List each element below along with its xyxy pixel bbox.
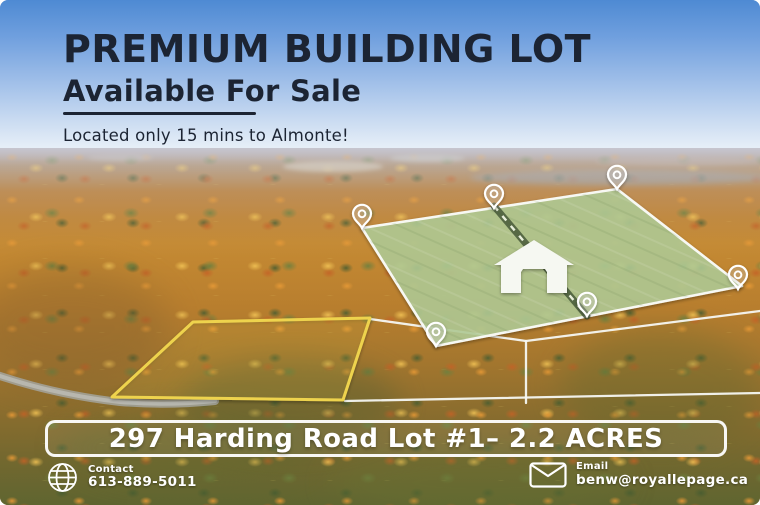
distant-field [595, 157, 760, 166]
distant-field [88, 154, 153, 161]
distant-lake [470, 170, 760, 185]
contact-block: Contact 613-889-5011 [46, 461, 197, 494]
email-label: Email [576, 461, 748, 473]
globe-icon [46, 461, 79, 494]
tagline: Located only 15 mins to Almonte! [63, 126, 591, 145]
distant-field [283, 161, 383, 172]
page-title: PREMIUM BUILDING LOT [63, 30, 591, 68]
address-banner: 297 Harding Road Lot #1– 2.2 ACRES [45, 420, 727, 457]
address-text: 297 Harding Road Lot #1– 2.2 ACRES [109, 424, 664, 454]
header-block: PREMIUM BUILDING LOT Available For Sale … [63, 30, 591, 145]
contact-phone: 613-889-5011 [88, 475, 197, 491]
listing-poster: PREMIUM BUILDING LOT Available For Sale … [0, 0, 760, 505]
email-address: benw@royallepage.ca [576, 473, 748, 489]
forest-texture [0, 268, 170, 388]
distant-field [390, 154, 465, 162]
subtitle-underline [63, 112, 256, 115]
subtitle: Available For Sale [63, 77, 591, 106]
email-block: Email benw@royallepage.ca [529, 461, 748, 488]
envelope-icon [529, 462, 567, 488]
